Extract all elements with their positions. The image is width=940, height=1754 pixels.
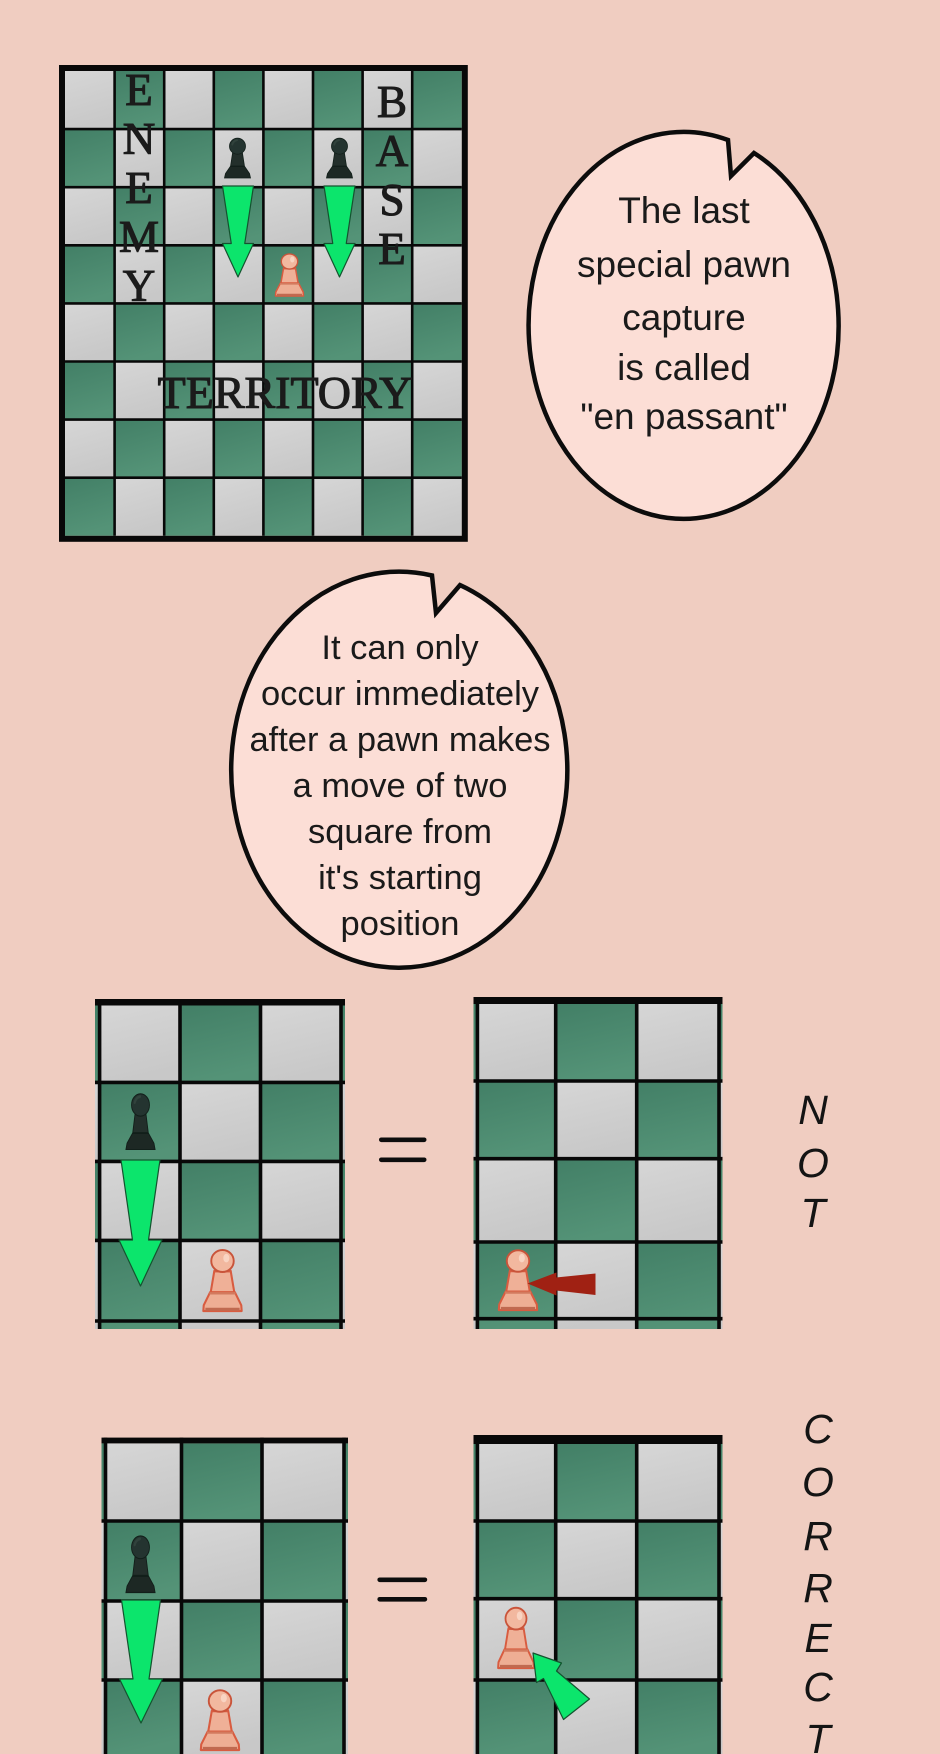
svg-text:R: R [803,1513,833,1559]
svg-text:C: C [803,1664,833,1710]
svg-text:is called: is called [617,347,751,388]
svg-text:M: M [119,212,159,262]
svg-text:T: T [805,1716,833,1754]
svg-text:B: B [377,77,407,127]
svg-text:E: E [125,163,153,213]
svg-text:it's starting: it's starting [318,859,482,897]
svg-text:TERRITORY: TERRITORY [158,367,413,418]
svg-text:occur immediately: occur immediately [261,675,540,713]
svg-text:capture: capture [622,297,745,338]
svg-text:The last: The last [618,190,750,231]
svg-text:"en passant": "en passant" [580,396,787,437]
svg-text:N: N [798,1087,828,1133]
svg-text:S: S [379,175,404,225]
svg-text:special pawn: special pawn [577,244,791,285]
svg-text:E: E [378,224,406,274]
svg-text:position: position [341,905,460,943]
svg-text:It can only: It can only [321,629,479,667]
svg-text:O: O [802,1459,834,1505]
svg-text:E: E [804,1615,832,1661]
svg-text:A: A [376,126,409,176]
svg-text:R: R [803,1565,833,1611]
svg-text:C: C [803,1406,833,1452]
svg-text:after a pawn makes: after a pawn makes [249,721,550,759]
svg-text:N: N [123,114,156,164]
svg-text:square from: square from [308,813,492,851]
svg-text:T: T [800,1190,828,1236]
svg-text:Y: Y [123,261,156,311]
svg-text:O: O [797,1140,829,1186]
svg-text:a move of two: a move of two [293,767,508,805]
svg-text:E: E [125,65,153,115]
